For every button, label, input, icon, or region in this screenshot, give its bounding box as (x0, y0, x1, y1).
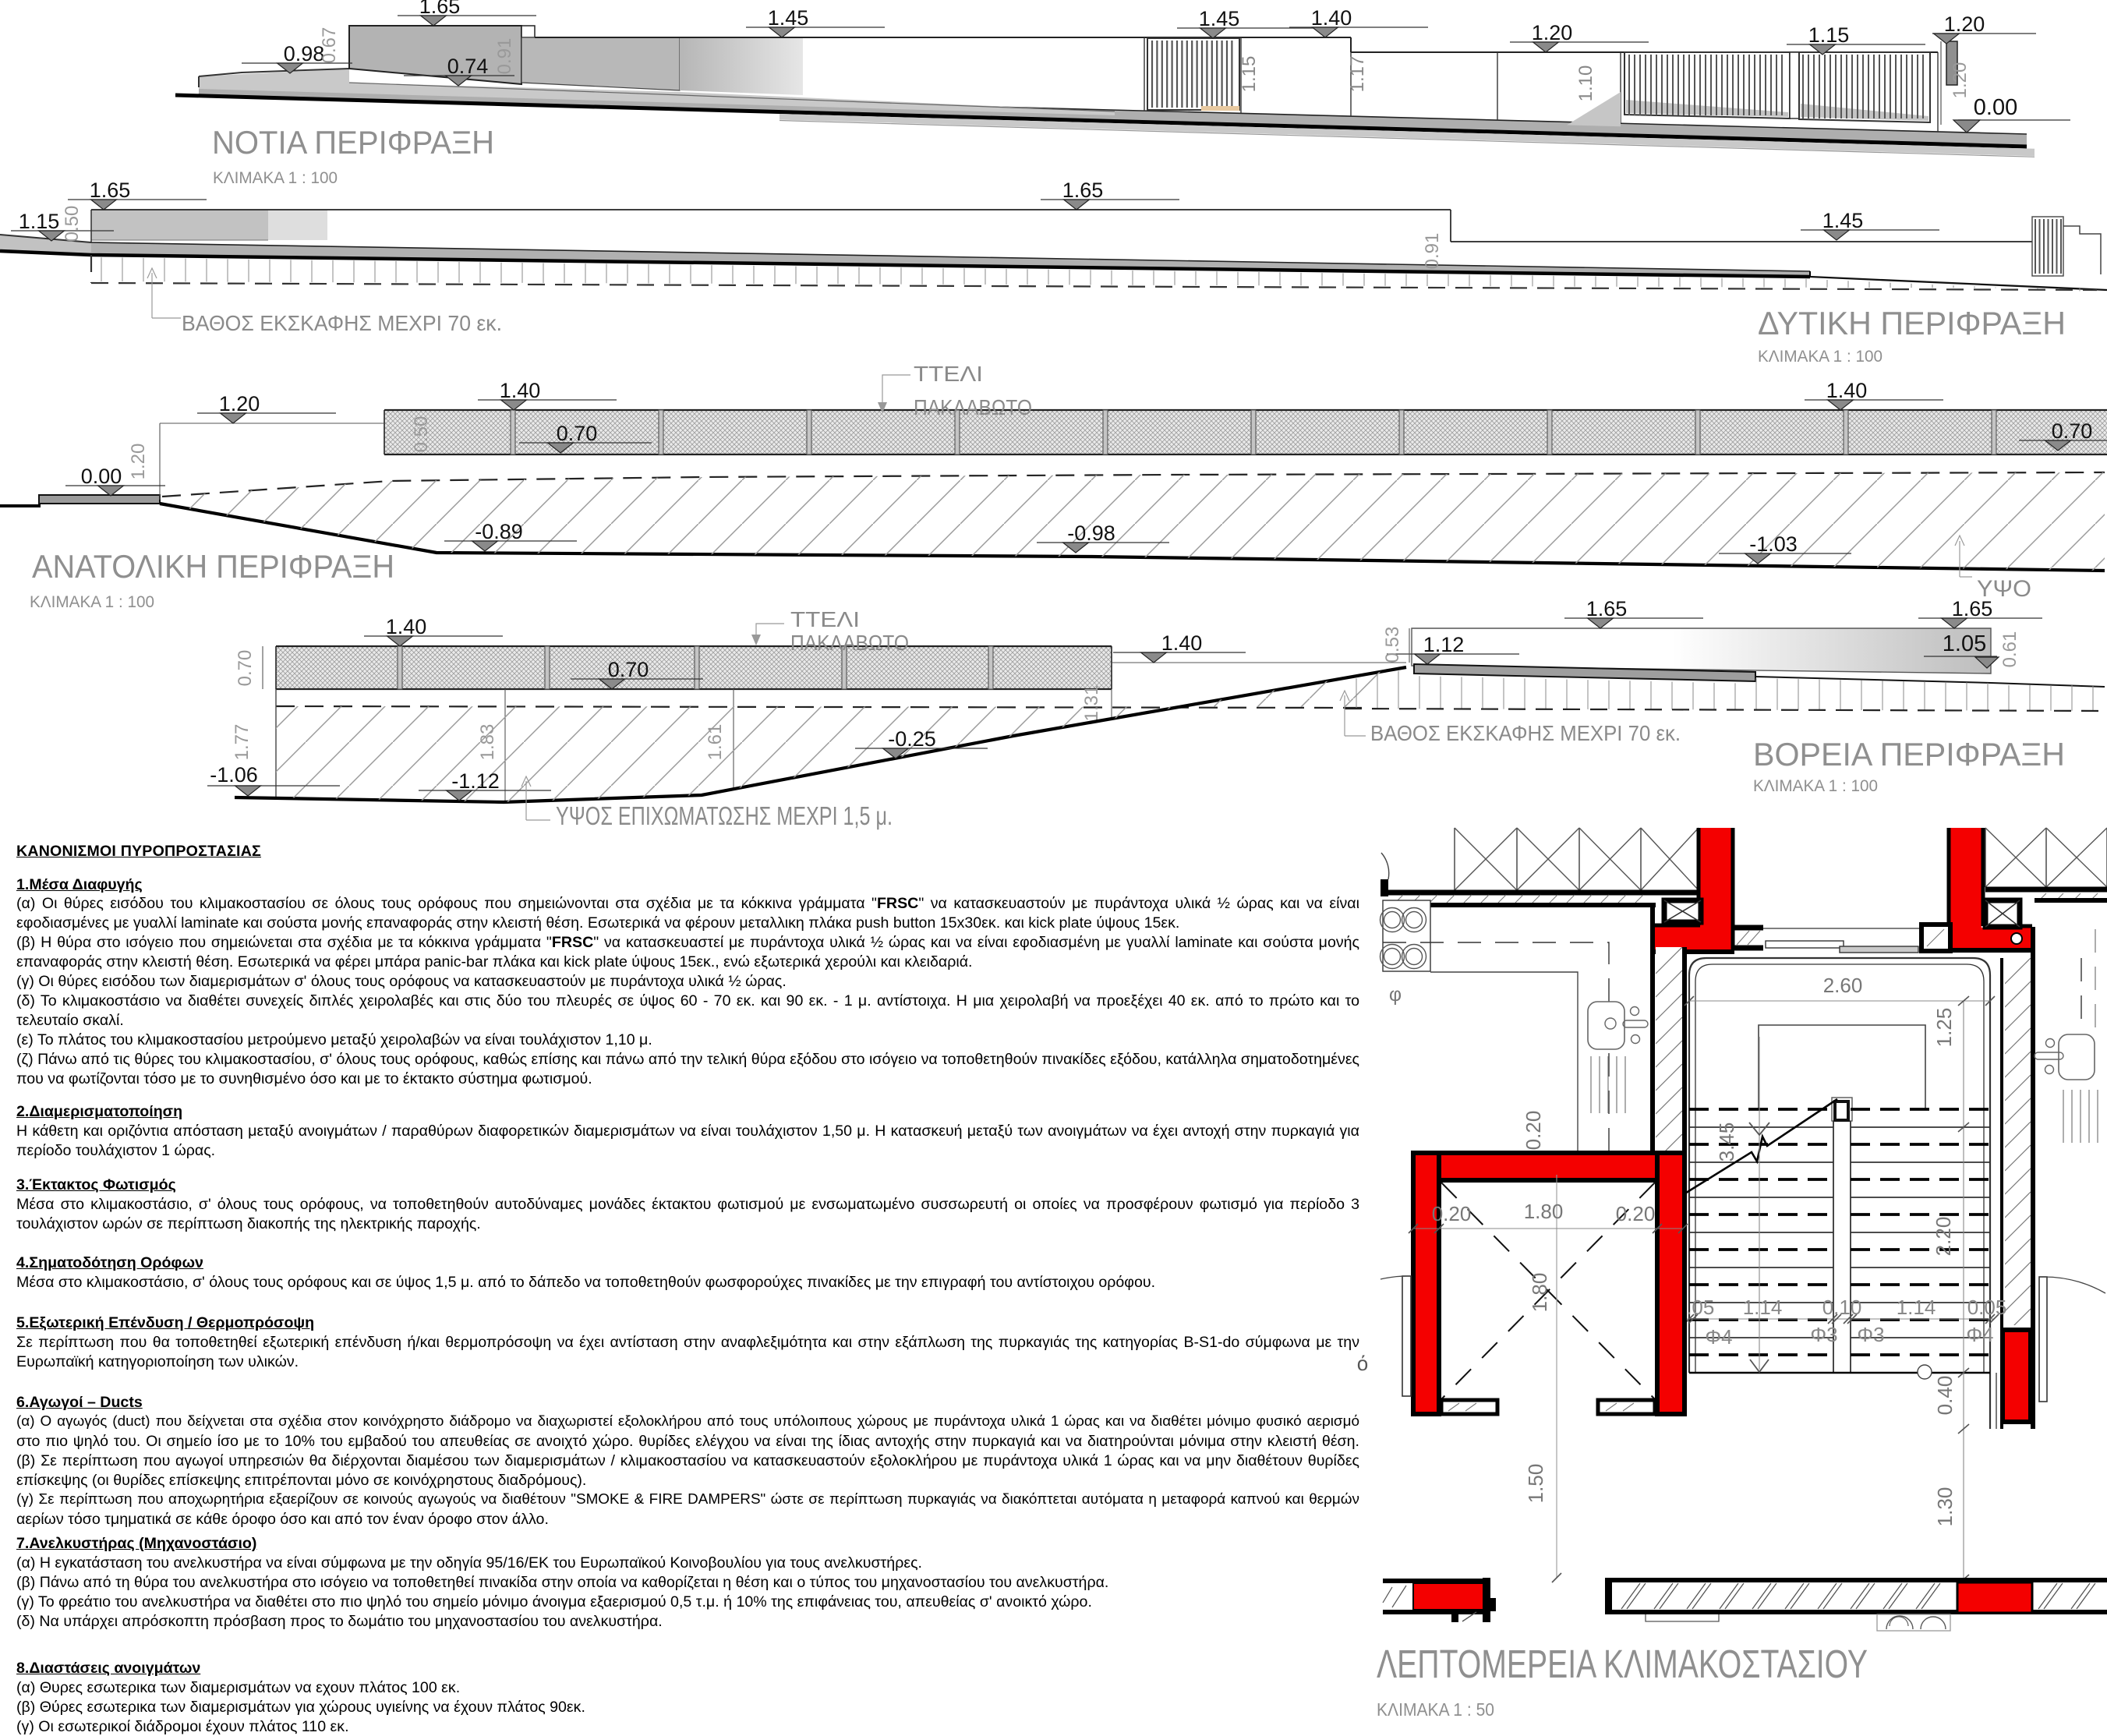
svg-text:0.20: 0.20 (1522, 1111, 1545, 1151)
svg-text:1.14: 1.14 (1743, 1296, 1783, 1319)
svg-text:1.20: 1.20 (1944, 12, 1985, 36)
svg-text:-1.03: -1.03 (1749, 532, 1798, 556)
svg-text:0.91: 0.91 (1422, 233, 1443, 270)
svg-text:0.40: 0.40 (1933, 1376, 1957, 1416)
svg-text:1.15: 1.15 (1808, 23, 1850, 47)
svg-text:1.10: 1.10 (1575, 65, 1596, 102)
svg-text:0.53: 0.53 (1382, 627, 1403, 663)
svg-text:1.50: 1.50 (1524, 1464, 1547, 1504)
svg-text:Φ4: Φ4 (1966, 1323, 1993, 1346)
svg-text:1.20: 1.20 (1532, 21, 1573, 44)
svg-text:0.70: 0.70 (2052, 419, 2093, 443)
svg-text:φ: φ (1389, 984, 1402, 1006)
svg-text:1.80: 1.80 (1528, 1273, 1551, 1313)
svg-text:ΒΑΘΟΣ ΕΚΣΚΑΦΗΣ ΜΕΧΡΙ 70 εκ.: ΒΑΘΟΣ ΕΚΣΚΑΦΗΣ ΜΕΧΡΙ 70 εκ. (1370, 721, 1681, 745)
svg-text:ΛΕΠΤΟΜΕΡΕΙΑ ΚΛΙΜΑΚΟΣΤΑΣΙΟΥ: ΛΕΠΤΟΜΕΡΕΙΑ ΚΛΙΜΑΚΟΣΤΑΣΙΟΥ (1377, 1642, 1868, 1686)
svg-text:ΚΛΙΜΑΚΑ 1 : 50: ΚΛΙΜΑΚΑ 1 : 50 (1377, 1699, 1494, 1720)
svg-text:3.45: 3.45 (1715, 1123, 1738, 1162)
svg-text:1.65: 1.65 (1586, 597, 1628, 621)
svg-text:2.60: 2.60 (1823, 974, 1863, 997)
svg-text:1.14: 1.14 (1897, 1296, 1936, 1319)
svg-text:1.40: 1.40 (1826, 379, 1868, 402)
svg-text:Φ3: Φ3 (1857, 1323, 1884, 1346)
svg-text:0.10: 0.10 (1822, 1296, 1862, 1319)
svg-text:1.45: 1.45 (1822, 209, 1864, 232)
svg-text:1.20: 1.20 (1950, 62, 1971, 99)
svg-text:1.05: 1.05 (1943, 631, 1986, 656)
svg-text:0.61: 0.61 (1999, 631, 2020, 668)
svg-text:ΒΟΡΕΙΑ ΠΕΡΙΦΡΑΞΗ: ΒΟΡΕΙΑ ΠΕΡΙΦΡΑΞΗ (1753, 736, 2065, 773)
svg-text:1.12: 1.12 (1423, 633, 1465, 656)
svg-text:Φ4: Φ4 (1705, 1325, 1732, 1349)
svg-text:1.25: 1.25 (1932, 1008, 1956, 1048)
svg-text:0.20: 0.20 (1432, 1202, 1472, 1225)
svg-text:0.00: 0.00 (1974, 95, 2017, 120)
svg-text:0.20: 0.20 (1616, 1202, 1656, 1225)
svg-text:2.20: 2.20 (1932, 1217, 1955, 1257)
svg-text:ΚΛΙΜΑΚΑ 1 : 100: ΚΛΙΜΑΚΑ 1 : 100 (1753, 777, 1878, 795)
svg-text:ΚΛΙΜΑΚΑ 1 : 100: ΚΛΙΜΑΚΑ 1 : 100 (1758, 348, 1883, 366)
svg-text:Φ3: Φ3 (1810, 1323, 1837, 1346)
svg-text:ΔΥΤΙΚΗ ΠΕΡΙΦΡΑΞΗ: ΔΥΤΙΚΗ ΠΕΡΙΦΡΑΞΗ (1758, 305, 2066, 341)
svg-text:1.30: 1.30 (1933, 1487, 1957, 1527)
svg-text:1.80: 1.80 (1524, 1200, 1564, 1223)
svg-text:0.05: 0.05 (1967, 1296, 2007, 1319)
svg-text:1.65: 1.65 (1952, 597, 1993, 621)
